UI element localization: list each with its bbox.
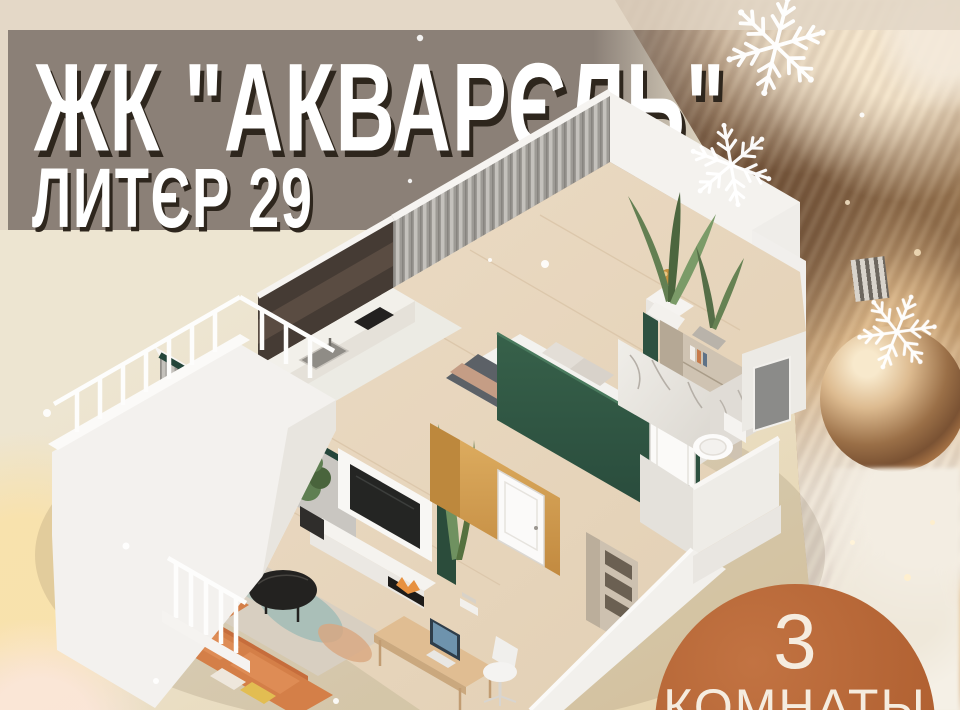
book-spine	[690, 345, 695, 362]
snowflake-icon	[715, 0, 837, 108]
entrance-door	[754, 357, 790, 431]
rooms-count: 3	[773, 602, 816, 680]
poster-canvas: ЖК "АКВАРЄЛЬ" ЛИТЄР 29	[0, 0, 960, 710]
snowflake-icon	[846, 280, 948, 384]
rooms-label: КОМНАТЫ	[663, 682, 926, 710]
